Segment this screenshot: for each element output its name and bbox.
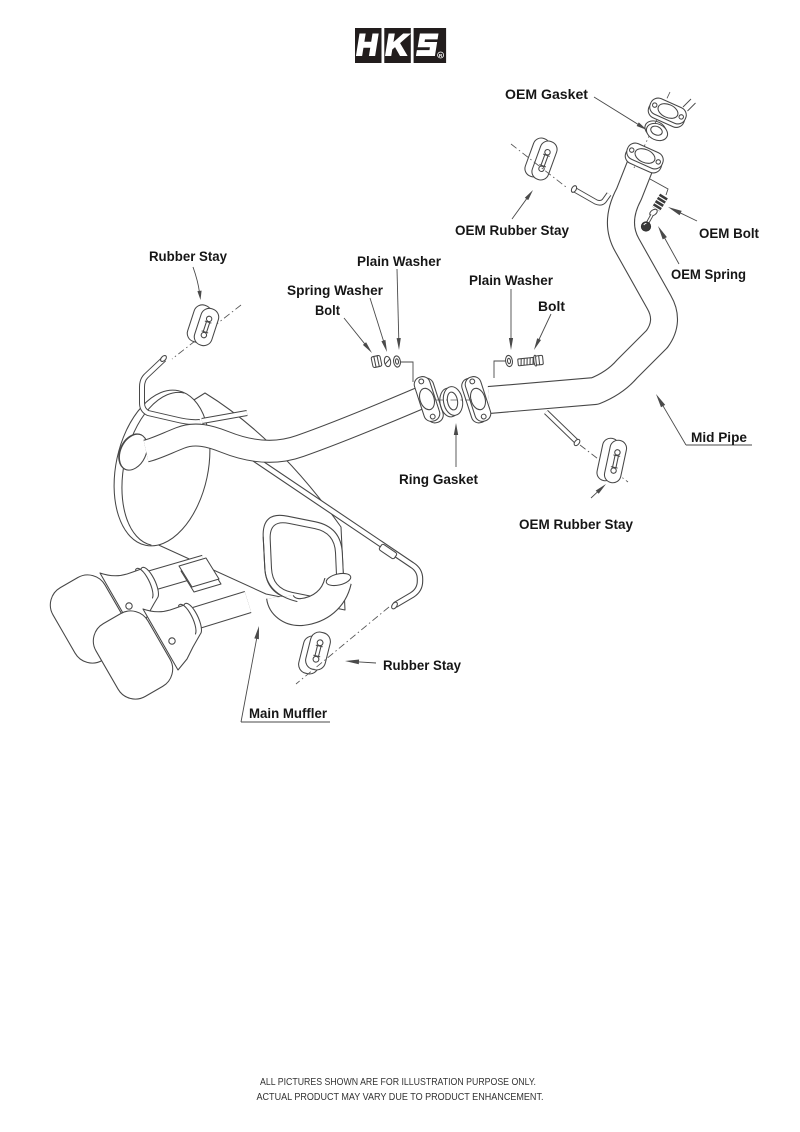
svg-text:Mid Pipe: Mid Pipe: [691, 430, 747, 445]
svg-text:Rubber Stay: Rubber Stay: [149, 249, 227, 264]
svg-text:OEM Gasket: OEM Gasket: [505, 87, 589, 102]
svg-text:ALL PICTURES SHOWN ARE FOR ILL: ALL PICTURES SHOWN ARE FOR ILLUSTRATION …: [260, 1076, 536, 1088]
svg-text:Plain Washer: Plain Washer: [357, 254, 442, 269]
svg-text:Bolt: Bolt: [538, 299, 566, 314]
svg-text:R: R: [439, 53, 443, 59]
svg-text:OEM Spring: OEM Spring: [671, 267, 746, 282]
svg-text:Ring Gasket: Ring Gasket: [399, 472, 478, 487]
svg-text:Spring Washer: Spring Washer: [287, 283, 384, 298]
svg-text:OEM Rubber Stay: OEM Rubber Stay: [519, 517, 633, 532]
svg-text:ACTUAL PRODUCT MAY VARY DUE TO: ACTUAL PRODUCT MAY VARY DUE TO PRODUCT E…: [257, 1091, 544, 1103]
svg-text:Main Muffler: Main Muffler: [249, 706, 328, 721]
svg-text:Rubber Stay: Rubber Stay: [383, 658, 461, 673]
svg-text:Plain Washer: Plain Washer: [469, 273, 554, 288]
svg-text:Bolt: Bolt: [315, 303, 340, 318]
svg-text:OEM Bolt: OEM Bolt: [699, 226, 759, 241]
svg-text:OEM Rubber Stay: OEM Rubber Stay: [455, 223, 569, 238]
